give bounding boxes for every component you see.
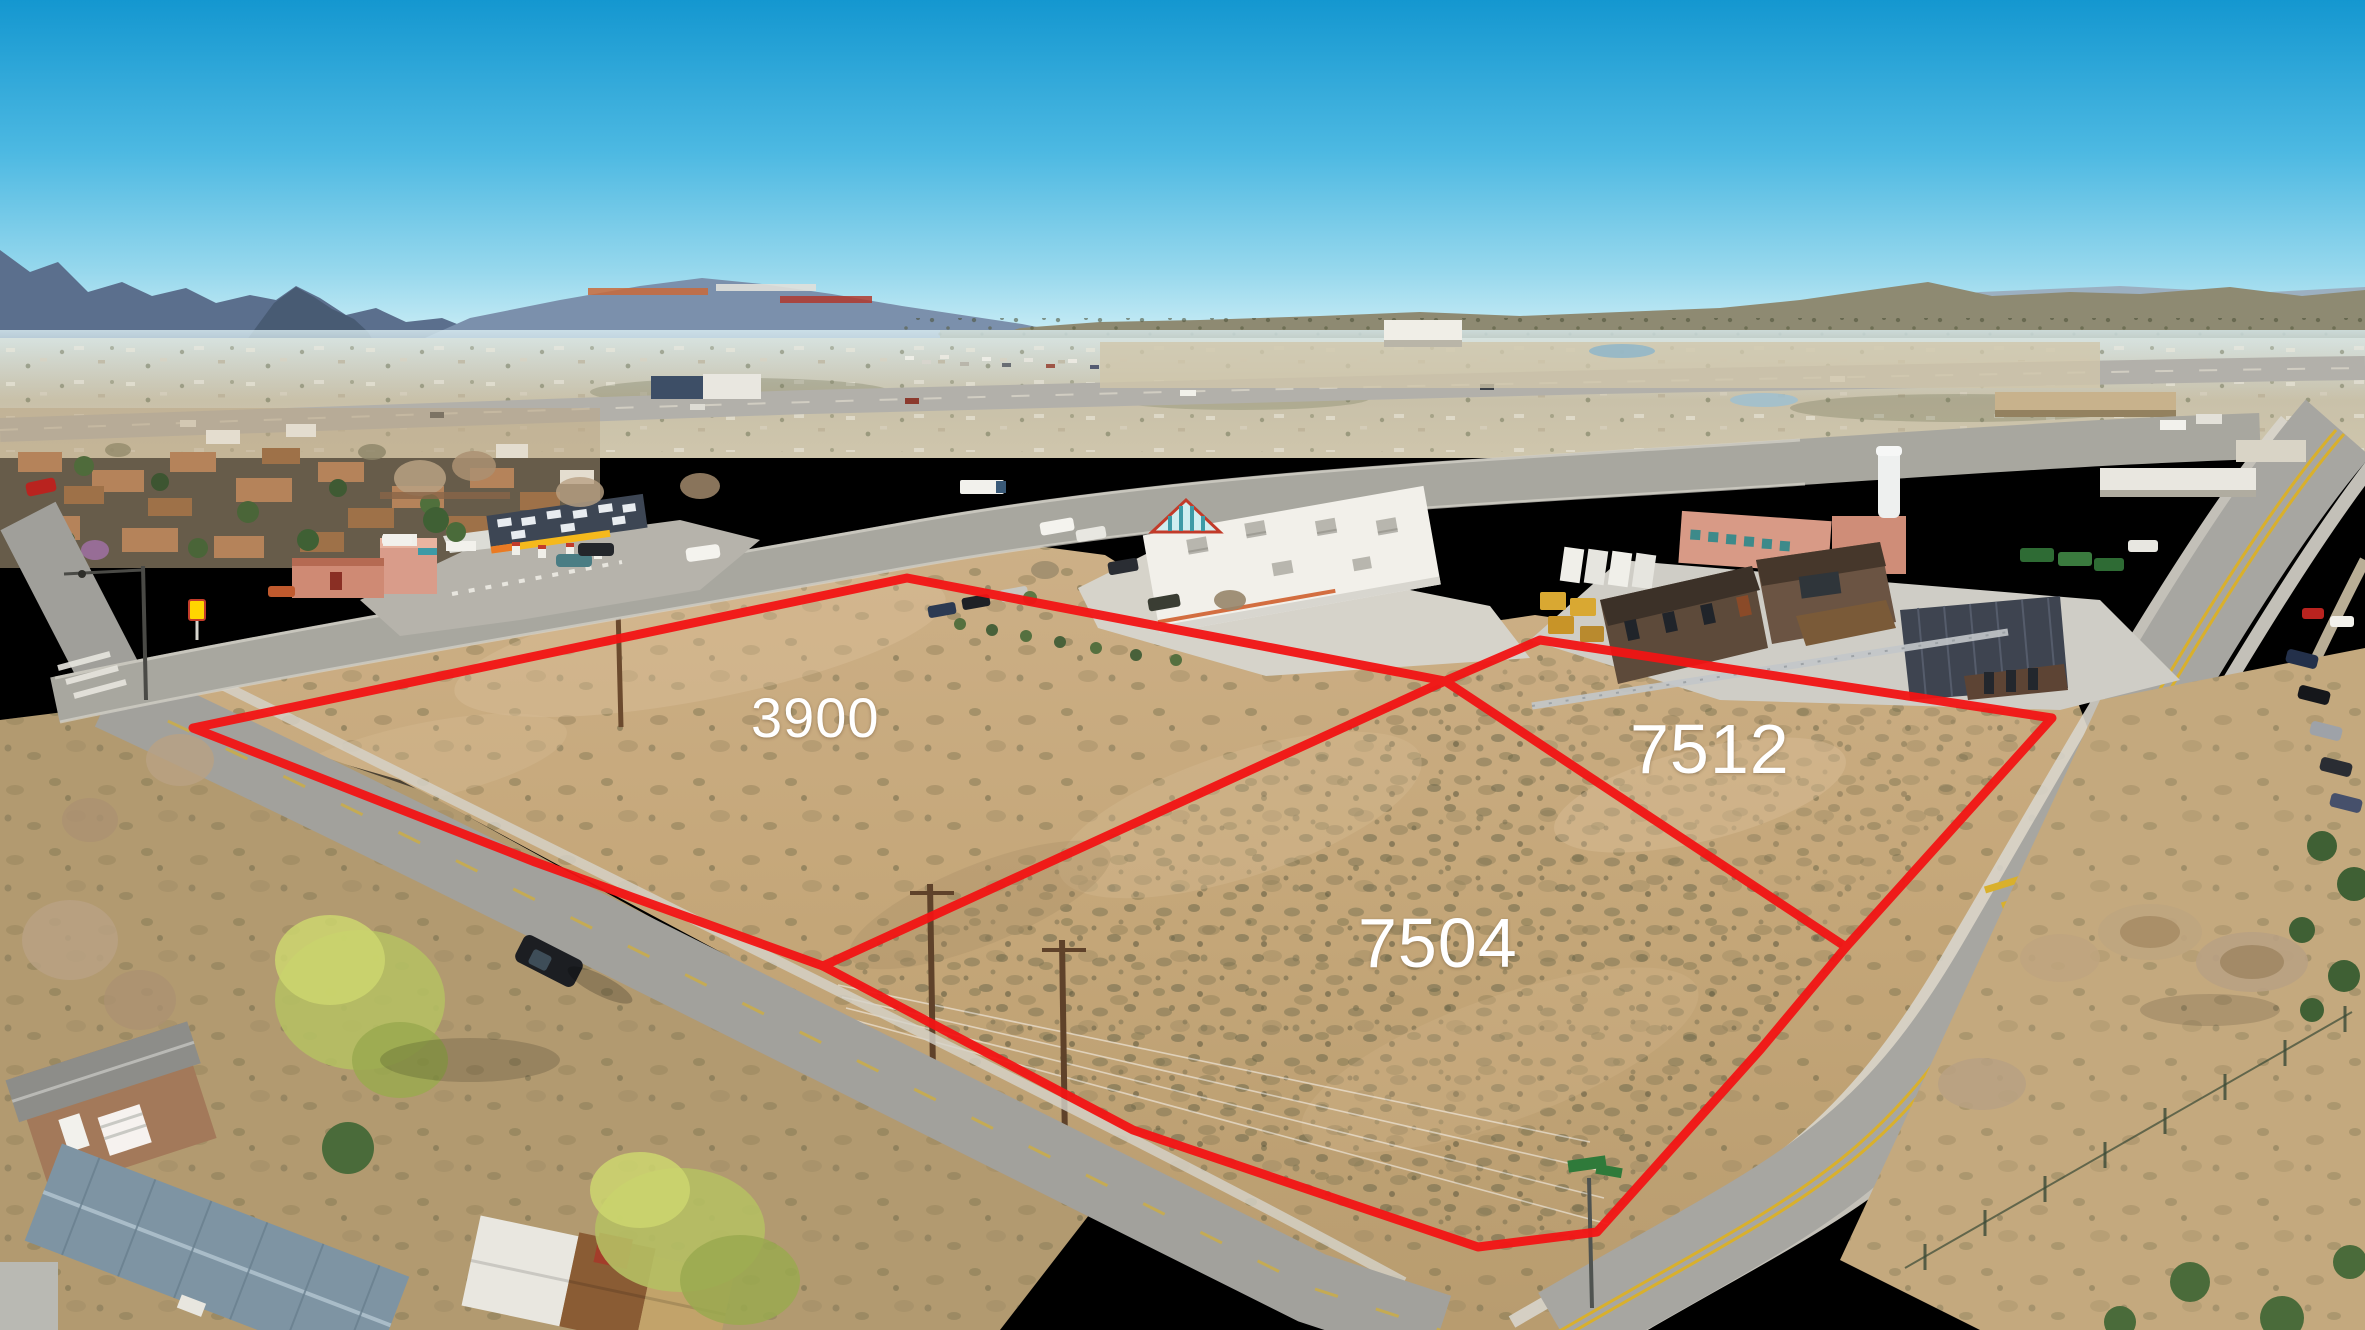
parcel-label-3900: 3900 [751, 690, 880, 746]
shell-sign [189, 600, 205, 640]
parcel-label-7512: 7512 [1630, 714, 1790, 784]
aerial-photo: 3900 7512 7504 [0, 0, 2365, 1330]
pond-2 [1730, 393, 1798, 407]
mobile-home-4 [0, 1262, 58, 1330]
pond [1589, 344, 1655, 358]
white-tower [1878, 450, 1900, 518]
parcel-label-7504: 7504 [1358, 908, 1518, 978]
modern-building-b [1756, 542, 1896, 646]
vans-white [382, 534, 412, 545]
van-dark [578, 543, 614, 556]
scene-canvas [0, 0, 2365, 1330]
purple-blossom-tree [81, 540, 109, 560]
white-rv-row [1560, 547, 1657, 589]
garbage-trucks [2020, 540, 2158, 571]
sky [0, 0, 2365, 340]
distant-big-box-store [651, 374, 761, 399]
